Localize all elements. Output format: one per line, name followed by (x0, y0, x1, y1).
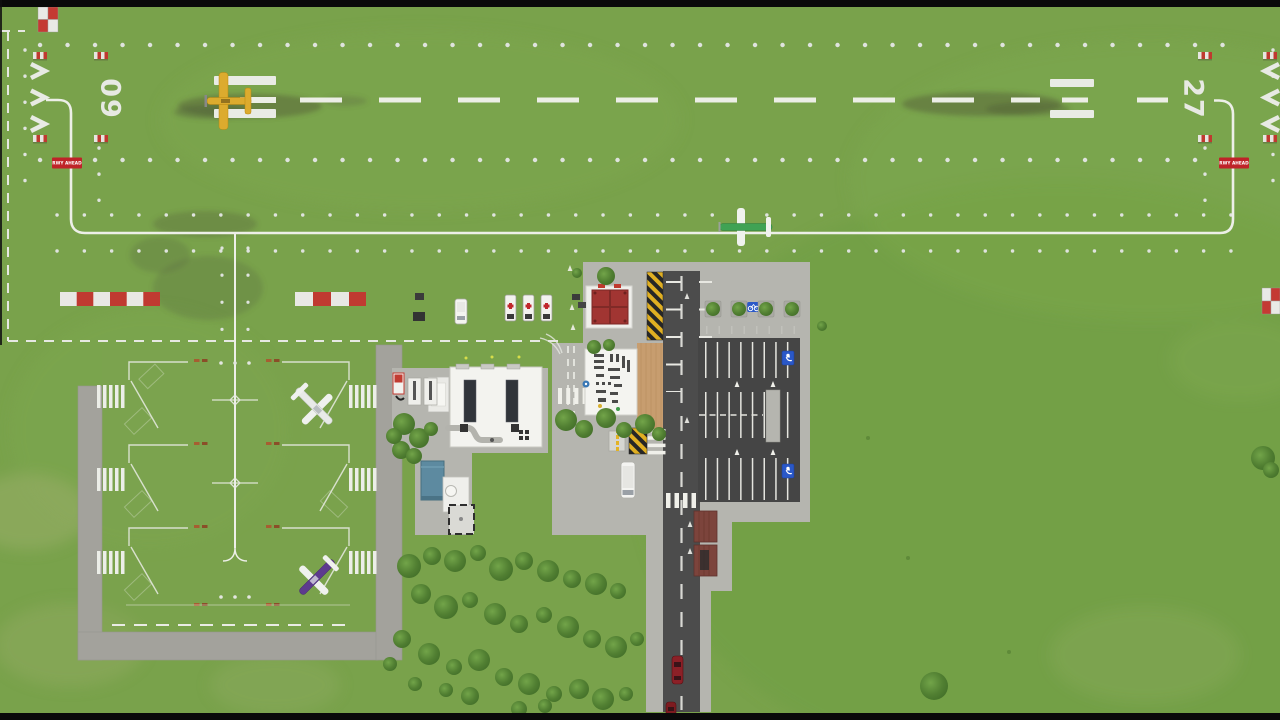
accessible-parking-icon (782, 464, 794, 478)
east-sidewalk (700, 591, 711, 712)
service-van[interactable] (455, 299, 467, 324)
fenced-equipment-pad[interactable] (449, 505, 474, 534)
medical-trailer[interactable] (505, 295, 516, 321)
letterbox-bottom (0, 713, 1280, 720)
checkered-marker-east (1262, 288, 1280, 314)
airport-scene: 09 27 (0, 0, 1280, 720)
letterbox-top (0, 0, 1280, 7)
rwy-ahead-sign-west: RWY AHEAD (52, 158, 82, 169)
hazard-barrier-strip (647, 272, 663, 340)
accessible-parking-icon (782, 351, 794, 365)
blue-workshop[interactable] (421, 461, 444, 500)
tiedown-grass-field (102, 350, 376, 632)
fuel-station[interactable] (393, 373, 437, 405)
fbo-hangar[interactable] (448, 356, 542, 448)
game-viewport: 09 27 (0, 0, 1280, 720)
car-northbound[interactable] (672, 656, 683, 684)
runway-number-27: 27 (1178, 78, 1209, 120)
screen-edge-left (0, 0, 2, 345)
checkered-marker-northwest (38, 7, 58, 32)
runway-number-09: 09 (95, 78, 126, 120)
waiting-passengers (700, 550, 709, 570)
medical-trailer[interactable] (523, 295, 534, 321)
lot-island (766, 390, 780, 442)
medical-trailer[interactable] (541, 295, 552, 321)
rwy-ahead-sign-text: RWY AHEAD (52, 161, 82, 167)
rwy-ahead-sign-east: RWY AHEAD (1219, 158, 1249, 169)
terminal-building[interactable] (583, 349, 638, 415)
rwy-ahead-sign-text: RWY AHEAD (1219, 161, 1249, 167)
red-roof-pavilion[interactable] (586, 284, 632, 328)
shuttle-bus[interactable] (621, 462, 635, 498)
